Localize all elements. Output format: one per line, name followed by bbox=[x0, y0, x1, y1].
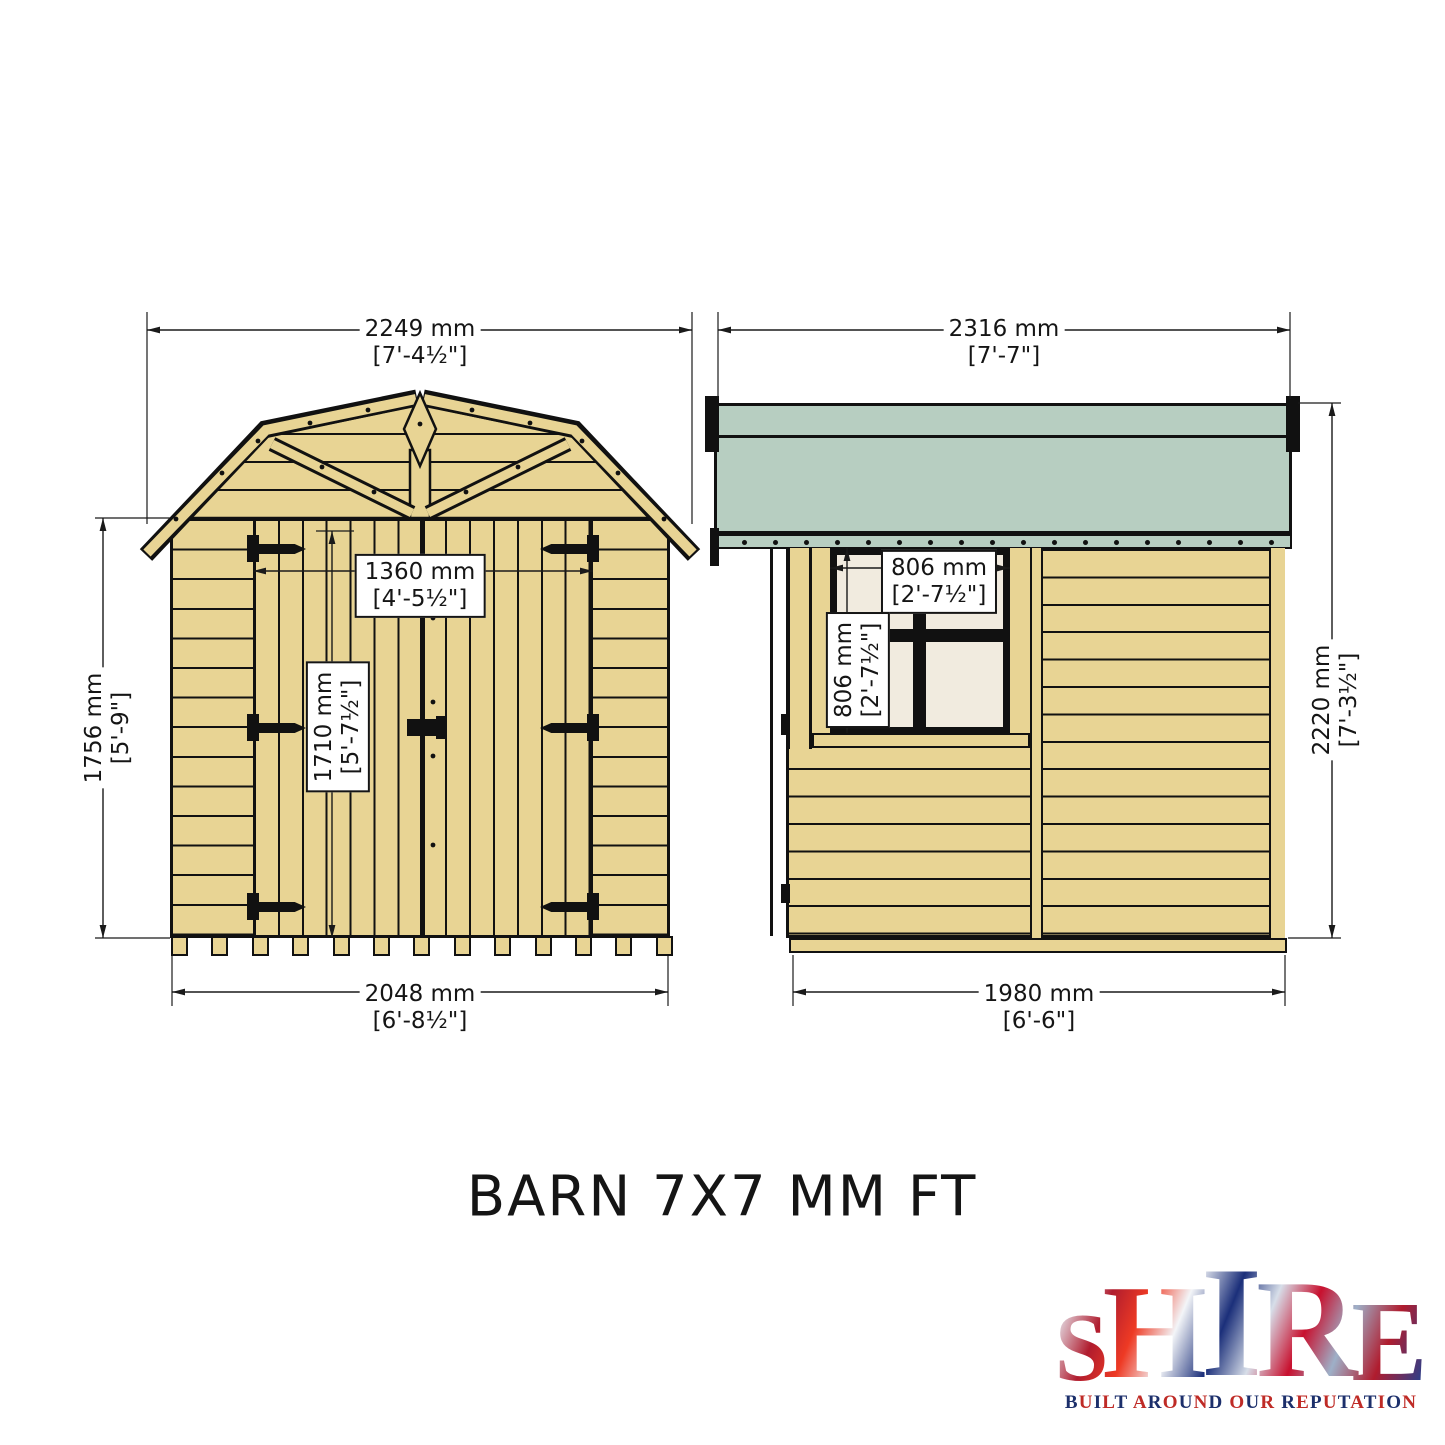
logo-brand: S H I R E bbox=[1038, 1246, 1444, 1388]
logo-letter: S bbox=[1055, 1308, 1109, 1388]
dim-front-door-height: 1710 mm[5'-7½"] bbox=[306, 662, 370, 793]
logo-letter: I bbox=[1201, 1258, 1263, 1388]
logo-tagline: BUILT AROUND OUR REPUTATION bbox=[1038, 1392, 1444, 1414]
hinge-icon bbox=[247, 535, 259, 562]
technical-drawing-sheet: 2249 mm[7'-4½"] 1756 mm[5'-9"] 1360 mm[4… bbox=[0, 0, 1445, 1445]
dim-front-overall-width: 2249 mm[7'-4½"] bbox=[360, 316, 481, 370]
logo-letter: H bbox=[1103, 1278, 1207, 1388]
extension-lines bbox=[95, 312, 1341, 1006]
hinge-icon bbox=[247, 714, 259, 741]
dim-front-wall-height: 1756 mm[5'-9"] bbox=[81, 668, 135, 789]
logo-letter: E bbox=[1351, 1295, 1427, 1388]
hinge-icon bbox=[587, 535, 599, 562]
shire-logo: S H I R E BUILT AROUND OUR REPUTATION bbox=[1038, 1246, 1444, 1418]
drawing-title: BARN 7X7 MM FT bbox=[467, 1165, 978, 1230]
logo-letter: R bbox=[1256, 1273, 1357, 1388]
dim-side-overall-height: 2220 mm[7'-3½"] bbox=[1309, 640, 1363, 761]
dim-side-overall-width: 2316 mm[7'-7"] bbox=[944, 316, 1065, 370]
dim-side-base-width: 1980 mm[6'-6"] bbox=[979, 981, 1100, 1035]
hinge-icon bbox=[247, 893, 259, 920]
side-hinge-icon bbox=[781, 714, 790, 735]
side-hinge-icon bbox=[781, 884, 790, 903]
door-latch-knob-icon bbox=[436, 716, 447, 739]
hinge-icon bbox=[587, 893, 599, 920]
dim-front-door-width: 1360 mm[4'-5½"] bbox=[355, 554, 486, 618]
dim-front-base-width: 2048 mm[6'-8½"] bbox=[360, 981, 481, 1035]
hinge-icon bbox=[587, 714, 599, 741]
dim-side-window-height: 806 mm[2'-7½"] bbox=[826, 612, 890, 728]
dim-side-window-width: 806 mm[2'-7½"] bbox=[881, 550, 997, 614]
